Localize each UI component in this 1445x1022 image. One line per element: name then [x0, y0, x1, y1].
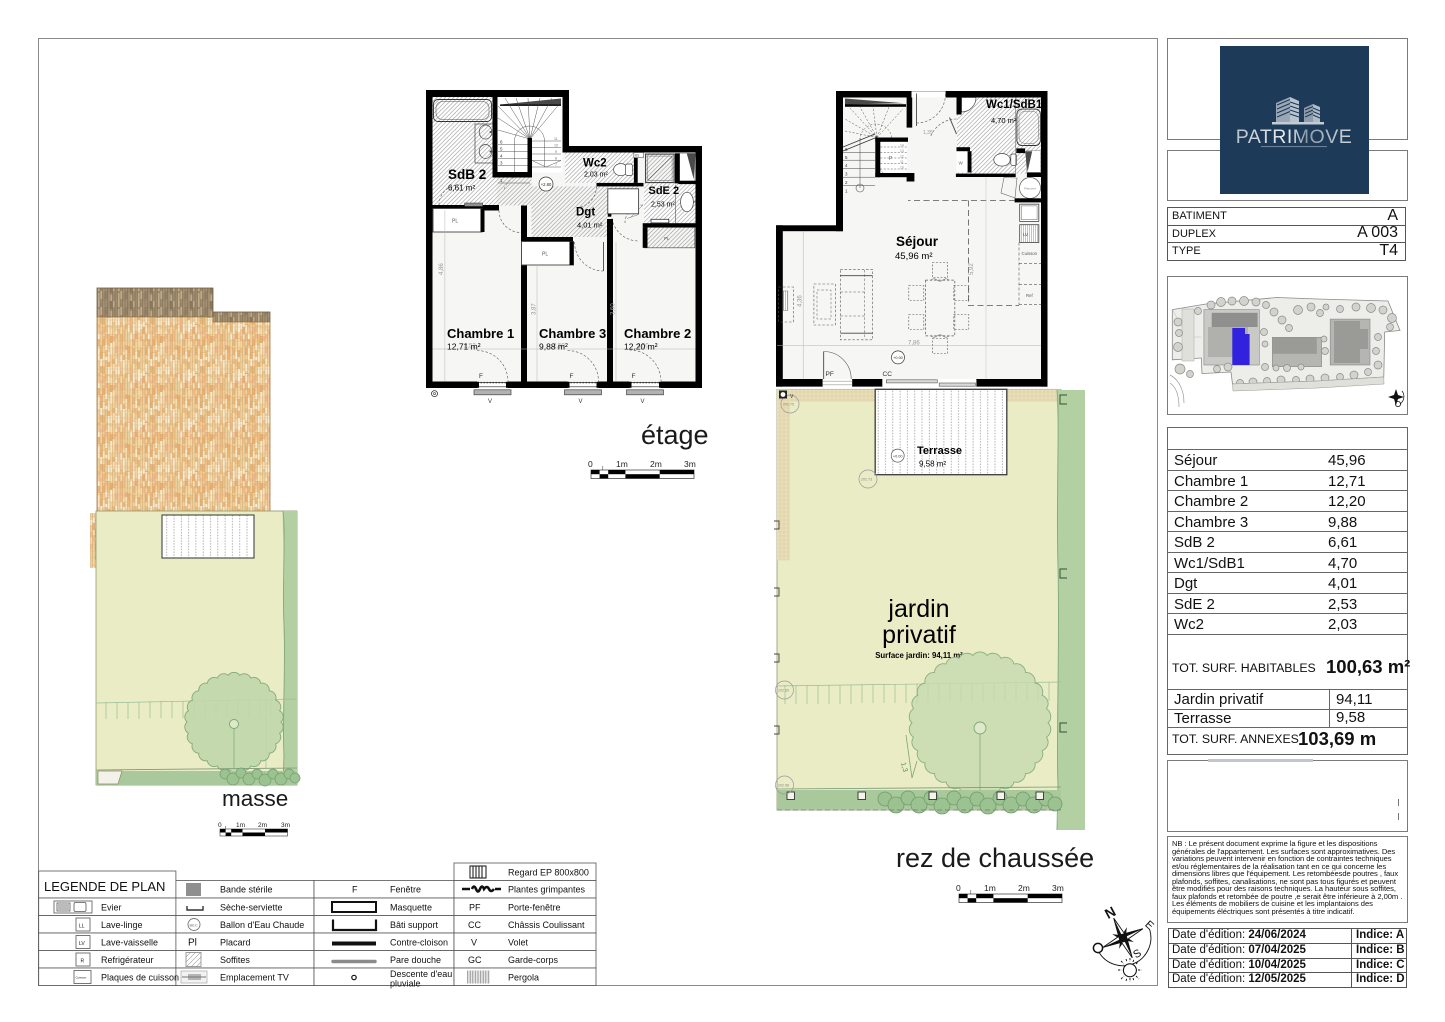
svg-text:GC: GC [468, 955, 482, 965]
svg-text:+0.00: +0.00 [893, 356, 903, 360]
svg-text:PL: PL [542, 252, 548, 258]
svg-text:1m: 1m [616, 459, 628, 469]
svg-text:2m: 2m [650, 459, 662, 469]
svg-text:Bâti support: Bâti support [390, 920, 439, 930]
svg-text:Pergola: Pergola [508, 973, 539, 983]
svg-text:202.65: 202.65 [778, 689, 789, 693]
svg-text:Dgt: Dgt [576, 207, 595, 219]
svg-text:PF: PF [469, 903, 481, 913]
svg-text:2,53 m²: 2,53 m² [651, 202, 675, 209]
svg-text:privatif: privatif [882, 621, 956, 649]
svg-text:E: E [1142, 919, 1155, 933]
svg-text:2,03 m²: 2,03 m² [584, 172, 608, 179]
svg-text:Contre-cloison: Contre-cloison [390, 938, 448, 948]
svg-text:PF: PF [826, 371, 834, 378]
svg-text:4,70 m²: 4,70 m² [991, 116, 1017, 125]
svg-text:+2.80: +2.80 [541, 182, 552, 187]
svg-text:5,92: 5,92 [969, 263, 975, 275]
svg-text:Regard EP 800x800: Regard EP 800x800 [508, 868, 589, 878]
svg-text:CC: CC [883, 371, 893, 378]
svg-text:Descente d'eau: Descente d'eau [390, 969, 452, 979]
svg-text:Chambre 3: Chambre 3 [539, 326, 606, 341]
svg-text:Chambre 1: Chambre 1 [447, 326, 514, 341]
svg-text:LL: LL [79, 924, 85, 930]
svg-text:PL: PL [664, 236, 670, 241]
svg-text:11: 11 [900, 160, 904, 164]
svg-text:+0.00: +0.00 [893, 454, 903, 458]
svg-text:V: V [488, 399, 492, 405]
svg-text:Refrigérateur: Refrigérateur [101, 955, 154, 965]
svg-text:Châssis Coulissant: Châssis Coulissant [508, 920, 585, 930]
svg-text:3m: 3m [281, 822, 290, 829]
svg-text:3m: 3m [1052, 883, 1064, 893]
svg-text:LEGENDE DE PLAN: LEGENDE DE PLAN [44, 879, 165, 894]
svg-text:0: 0 [956, 883, 961, 893]
svg-text:Lave-linge: Lave-linge [101, 920, 143, 930]
svg-text:Masquette: Masquette [390, 903, 432, 913]
svg-text:LV: LV [79, 941, 85, 947]
svg-text:Pare douche: Pare douche [390, 955, 441, 965]
svg-text:45,96 m²: 45,96 m² [895, 251, 933, 262]
svg-text:12,20 m²: 12,20 m² [624, 342, 658, 352]
svg-text:Plancher: Plancher [1024, 187, 1036, 191]
svg-text:1m: 1m [236, 822, 245, 829]
svg-text:Chambre 2: Chambre 2 [624, 326, 691, 341]
svg-text:Soffites: Soffites [220, 955, 250, 965]
svg-text:Wc1/SdB1: Wc1/SdB1 [986, 99, 1043, 111]
svg-text:2m: 2m [258, 822, 267, 829]
svg-text:Evier: Evier [101, 903, 122, 913]
svg-text:Plantes grimpantes: Plantes grimpantes [508, 885, 586, 895]
svg-text:CC: CC [468, 920, 481, 930]
svg-text:Séjour: Séjour [896, 234, 939, 249]
svg-text:R: R [81, 959, 85, 965]
svg-text:12,71 m²: 12,71 m² [447, 342, 481, 352]
svg-text:10: 10 [900, 166, 904, 170]
svg-text:3,87: 3,87 [532, 303, 538, 315]
svg-text:4,01 m²: 4,01 m² [577, 221, 603, 230]
svg-text:0: 0 [218, 822, 222, 829]
svg-text:1m: 1m [984, 883, 996, 893]
svg-text:Volet: Volet [508, 938, 529, 948]
svg-text:202.58: 202.58 [778, 784, 789, 788]
svg-text:10: 10 [554, 144, 558, 148]
svg-text:Ballon d'Eau Chaude: Ballon d'Eau Chaude [220, 920, 304, 930]
svg-text:V: V [471, 938, 477, 948]
svg-text:13: 13 [900, 149, 904, 153]
svg-text:BEC: BEC [190, 923, 198, 928]
svg-text:7,86: 7,86 [908, 341, 920, 347]
svg-text:Bande stérile: Bande stérile [220, 885, 273, 895]
svg-text:BS: BS [635, 154, 639, 158]
svg-text:4,36: 4,36 [798, 295, 804, 307]
svg-text:9,88 m²: 9,88 m² [539, 342, 568, 352]
svg-text:V: V [641, 399, 645, 405]
svg-text:3m: 3m [684, 459, 696, 469]
svg-text:Ref: Ref [1026, 293, 1033, 298]
svg-text:9: 9 [555, 150, 557, 154]
svg-text:pluviale: pluviale [390, 979, 421, 989]
svg-text:Porte-fenêtre: Porte-fenêtre [508, 903, 561, 913]
svg-text:Fenêtre: Fenêtre [390, 885, 421, 895]
svg-text:6,61 m²: 6,61 m² [448, 184, 475, 193]
svg-text:F: F [632, 373, 636, 380]
svg-text:4,86: 4,86 [439, 263, 445, 275]
svg-text:V: V [579, 399, 583, 405]
svg-text:8: 8 [555, 157, 557, 161]
svg-text:7: 7 [555, 163, 557, 167]
svg-text:Garde-corps: Garde-corps [508, 955, 559, 965]
svg-text:2m: 2m [1018, 883, 1030, 893]
svg-text:Lave-vaisselle: Lave-vaisselle [101, 938, 158, 948]
svg-text:SdE 2: SdE 2 [649, 185, 680, 197]
svg-text:0: 0 [588, 459, 593, 469]
svg-text:SdB 2: SdB 2 [448, 167, 486, 182]
svg-text:12: 12 [900, 155, 904, 159]
svg-text:Pl: Pl [188, 938, 197, 949]
svg-text:F: F [479, 373, 483, 380]
svg-text:N: N [1102, 903, 1118, 922]
svg-text:LV: LV [1023, 232, 1028, 237]
svg-text:Emplacement TV: Emplacement TV [220, 973, 289, 983]
svg-text:F: F [570, 373, 574, 380]
svg-text:14: 14 [900, 144, 904, 148]
svg-text:11: 11 [554, 137, 558, 141]
svg-text:Sèche-serviette: Sèche-serviette [220, 903, 283, 913]
svg-text:202.75: 202.75 [783, 403, 794, 407]
svg-text:9,58 m²: 9,58 m² [919, 460, 946, 469]
svg-text:3,60: 3,60 [611, 303, 617, 315]
svg-text:F: F [352, 885, 358, 895]
svg-text:Cuisson: Cuisson [1022, 251, 1038, 256]
svg-text:Placard: Placard [220, 938, 251, 948]
svg-text:Plaques de cuisson: Plaques de cuisson [101, 973, 179, 983]
svg-text:202.73: 202.73 [861, 478, 872, 482]
svg-text:Wc2: Wc2 [583, 158, 607, 170]
svg-text:PATRIMOVE: PATRIMOVE [1236, 126, 1352, 148]
svg-text:PL: PL [452, 219, 458, 225]
svg-text:Cuisson: Cuisson [76, 976, 87, 980]
svg-text:jardin: jardin [887, 595, 949, 623]
svg-text:Terrasse: Terrasse [917, 445, 962, 457]
